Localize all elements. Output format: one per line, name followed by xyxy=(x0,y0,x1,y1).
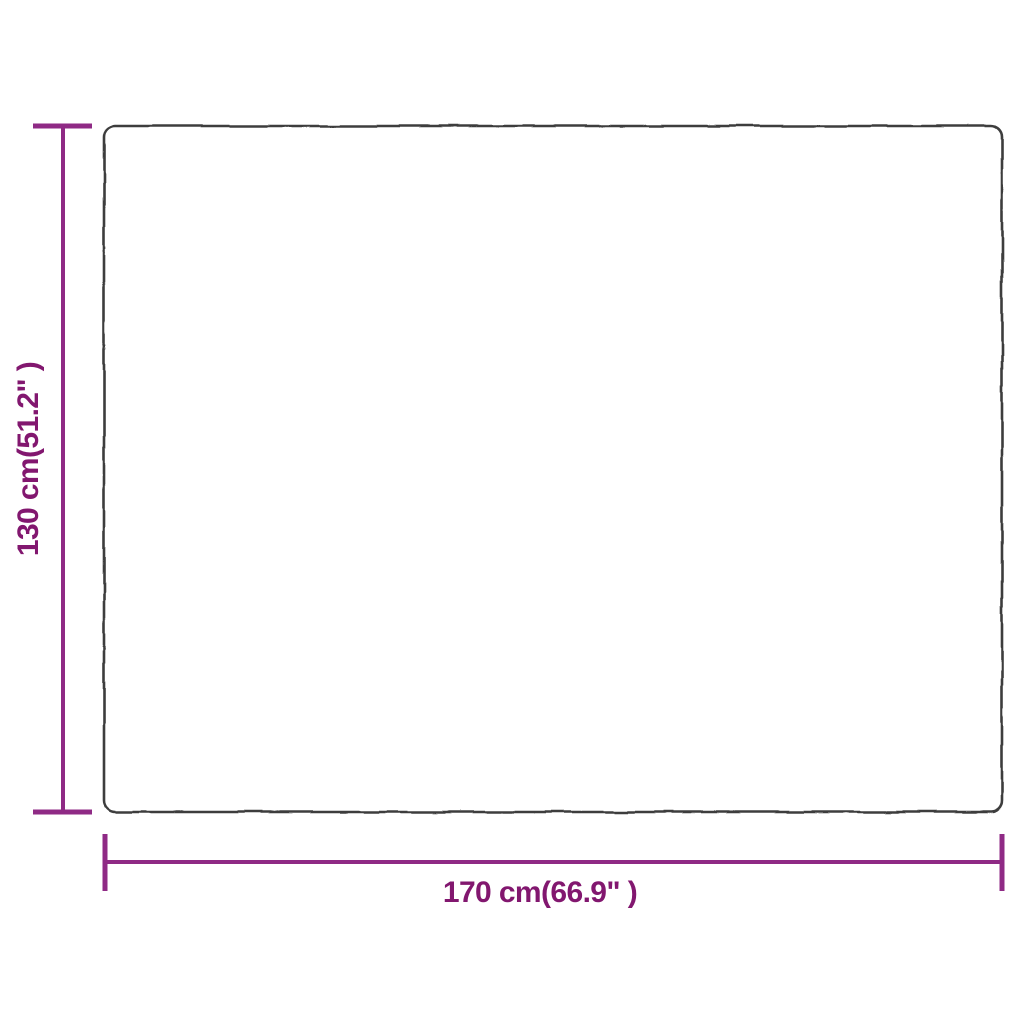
width-dimension-label: 170 cm(66.9" ) xyxy=(443,878,637,908)
blanket-outline xyxy=(104,126,1002,812)
dimension-diagram-canvas xyxy=(0,0,1024,1024)
height-dimension-label: 130 cm(51.2" ) xyxy=(14,362,44,556)
